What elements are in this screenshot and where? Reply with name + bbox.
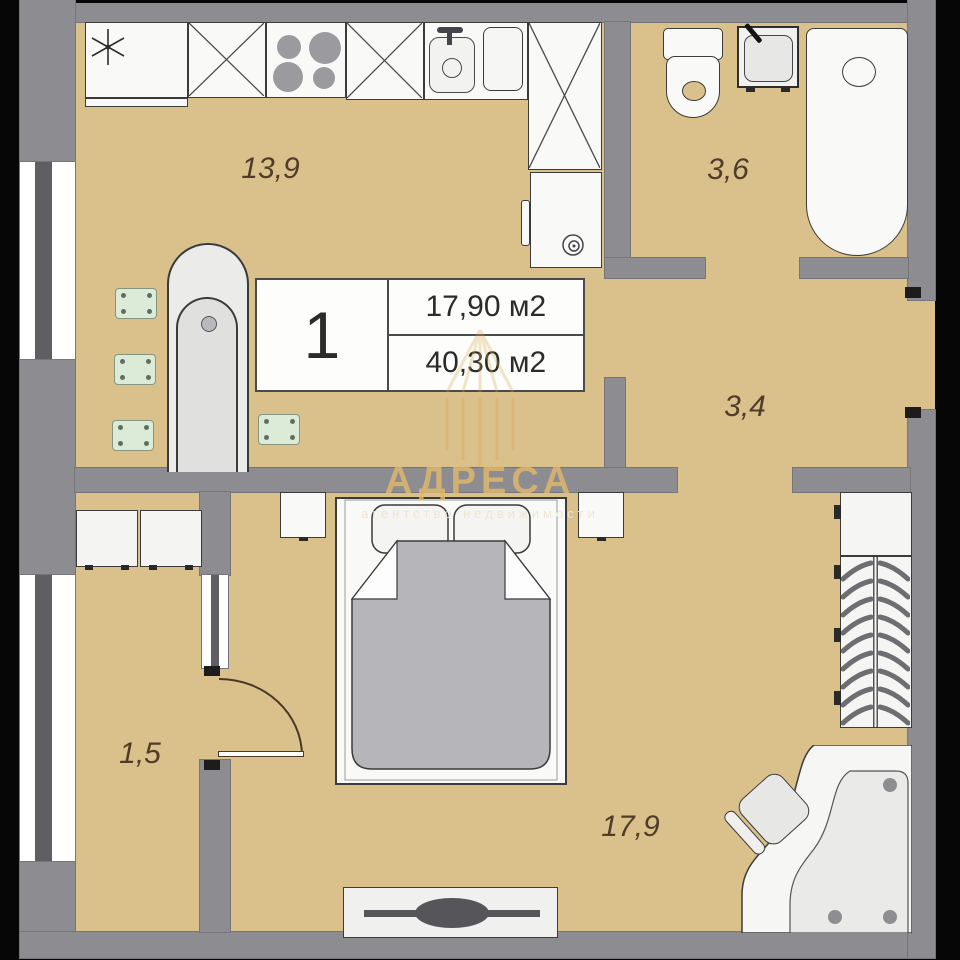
toilet (663, 26, 725, 120)
wardrobe-hangers (841, 557, 910, 727)
fridge-ledge (85, 98, 188, 107)
wall-left-upper (20, 0, 75, 162)
watermark-subtitle: агентство недвижимости (330, 506, 630, 521)
window-mullion (211, 575, 219, 668)
washing-machine (530, 172, 602, 268)
border-top (0, 0, 960, 3)
wardrobe-hinge (834, 691, 841, 705)
wall-left-mid (20, 360, 75, 575)
wall-top (20, 0, 935, 22)
toilet-bowl (666, 56, 720, 118)
wardrobe-hinge (834, 565, 841, 579)
wall-hall-bedroom-right (793, 468, 910, 492)
balcony-door-stop-top (204, 666, 220, 676)
wall-bathroom-bottom-right (800, 258, 908, 278)
bar-table-inner (176, 297, 238, 472)
burner (313, 67, 335, 89)
stove (266, 22, 346, 98)
stool (114, 354, 156, 385)
entrance-door-stop-bottom (905, 407, 921, 418)
toilet-hole (682, 81, 706, 101)
sink-counter (424, 22, 528, 100)
burner (309, 32, 341, 64)
bathtub-drain (842, 57, 876, 87)
bar-table-knob (201, 316, 217, 332)
wardrobe-hinge (834, 628, 841, 642)
watermark-lamp-icon (433, 330, 527, 470)
balcony-cabinet (140, 510, 202, 567)
floor-plan: 1 17,90 м2 40,30 м2 (0, 0, 960, 960)
nightstand-left (280, 492, 326, 538)
wall-right-lower (908, 410, 935, 958)
unit-number: 1 (257, 280, 389, 390)
balcony-door-window (202, 575, 228, 668)
tall-cabinet (528, 22, 602, 170)
cabinet-foot (185, 565, 193, 570)
double-bed (335, 497, 567, 785)
room-label-bedroom: 17,9 (583, 810, 678, 844)
faucet-icon (447, 30, 452, 45)
window-balcony (20, 575, 75, 862)
nightstand-foot (299, 537, 308, 541)
desk-leg (883, 910, 897, 924)
balcony-cabinet (76, 510, 138, 567)
window-kitchen (20, 162, 75, 360)
burner (277, 35, 301, 59)
burner (273, 62, 303, 92)
watermark-title: АДРЕСА (340, 460, 620, 503)
desk-leg (883, 778, 897, 792)
fridge (85, 22, 188, 98)
tv-icon (415, 898, 489, 928)
entrance-door-stop-top (905, 287, 921, 298)
wardrobe-hinge (834, 505, 841, 519)
washbasin-foot (746, 87, 755, 92)
sink-drainer (483, 27, 523, 91)
tv-stand (343, 887, 558, 938)
room-label-kitchen-living: 13,9 (223, 152, 318, 186)
window-mullion (35, 575, 52, 862)
washbasin (737, 26, 799, 88)
wall-bathroom-bottom-left (605, 258, 705, 278)
balcony-door-stop-bottom (204, 760, 220, 770)
bathtub (806, 28, 908, 256)
wardrobe (840, 492, 912, 728)
stool (115, 288, 157, 319)
snowflake-icon (88, 27, 128, 67)
wall-hall-left (605, 378, 625, 470)
stool (112, 420, 154, 451)
cabinet-foot (85, 565, 93, 570)
nightstand-foot (597, 537, 606, 541)
sink-drain (442, 58, 462, 78)
kitchen-cabinet-2 (346, 22, 424, 100)
bar-table (167, 243, 249, 472)
cabinet-foot (149, 565, 157, 570)
wall-balcony-divider-bottom (200, 760, 230, 932)
washbasin-bowl (744, 35, 793, 82)
room-label-hall: 3,4 (700, 390, 790, 424)
kitchen-cabinet-1 (188, 22, 266, 98)
room-label-bathroom: 3,6 (683, 153, 773, 187)
stool (258, 414, 300, 445)
washing-machine-handle (521, 200, 530, 246)
desk-leg (828, 910, 842, 924)
wall-balcony-divider-top (200, 492, 230, 575)
wall-right-upper (908, 0, 935, 300)
living-area-value: 17,90 м2 (389, 280, 583, 336)
info-box: 1 17,90 м2 40,30 м2 (255, 278, 585, 392)
balcony-door-leaf (218, 751, 304, 757)
room-label-balcony: 1,5 (95, 737, 185, 771)
cabinet-foot (121, 565, 129, 570)
spiral-icon (559, 231, 587, 259)
wall-bathroom-left (605, 22, 630, 275)
window-mullion (35, 162, 52, 360)
sink-basin (429, 37, 475, 93)
washbasin-foot (781, 87, 790, 92)
